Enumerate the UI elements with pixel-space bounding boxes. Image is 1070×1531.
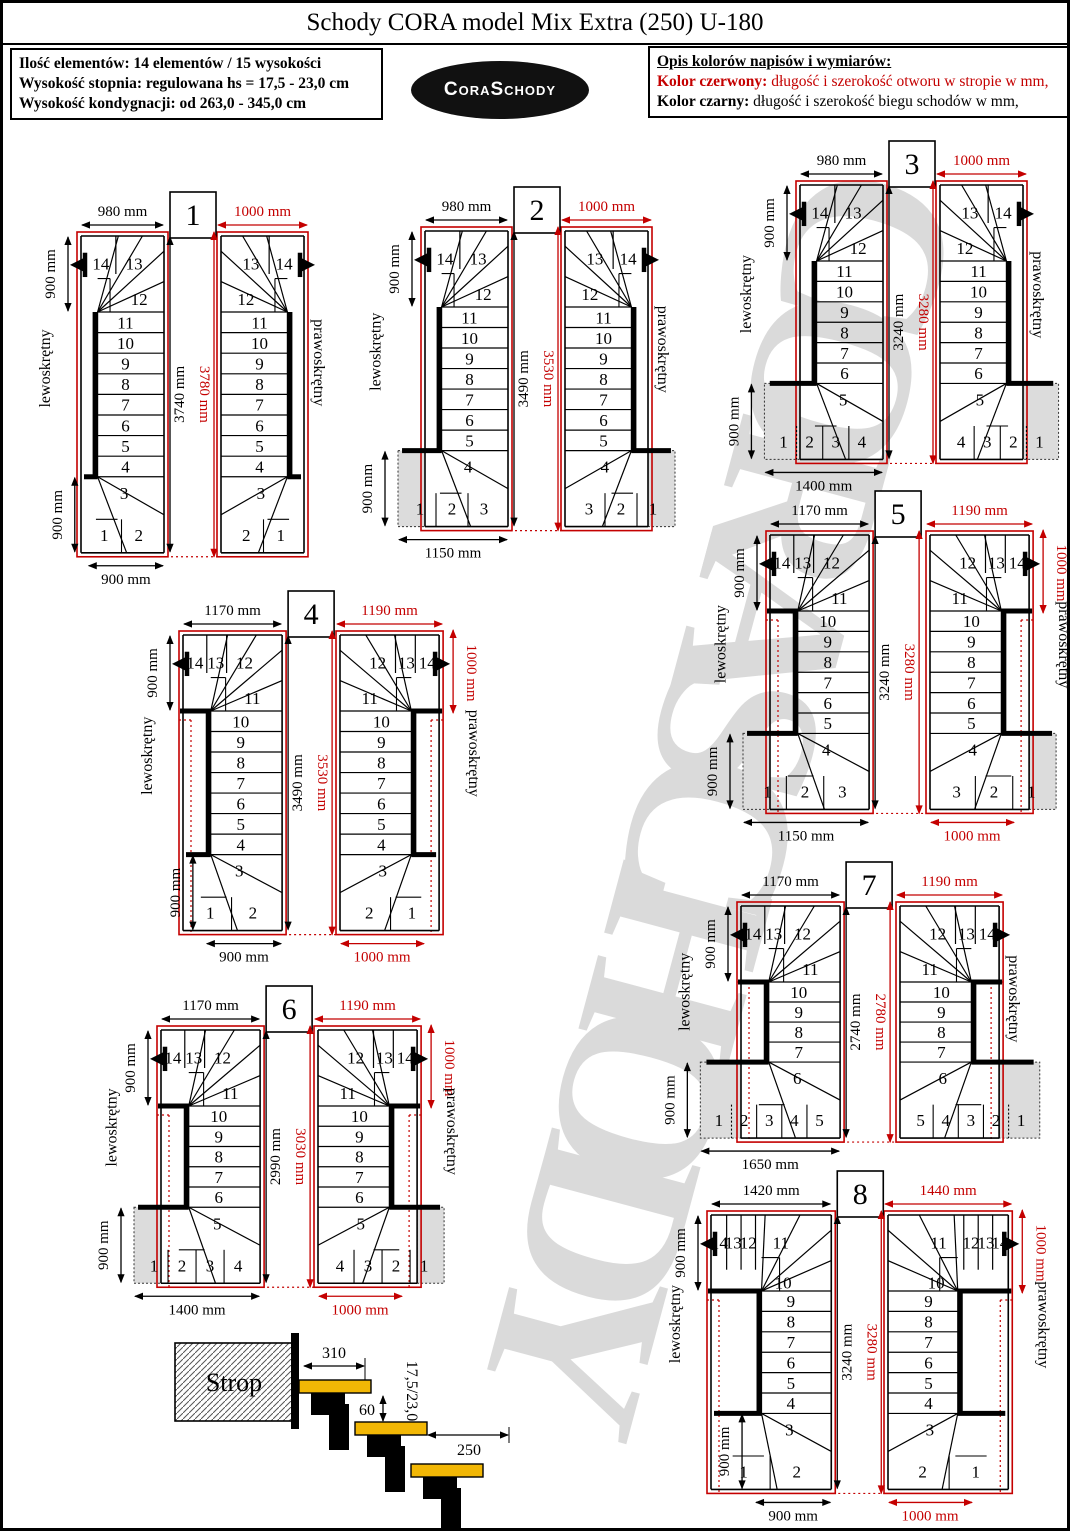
arrowhead-down xyxy=(427,1100,434,1109)
info-line-elements: Ilość elementów: 14 elementów / 15 wysok… xyxy=(19,55,374,73)
step-number: 8 xyxy=(599,370,608,389)
winder-line xyxy=(267,236,288,312)
step-number: 5 xyxy=(236,815,245,834)
step-number: 2 xyxy=(990,782,999,801)
step-number: 6 xyxy=(121,416,129,435)
step-number: 9 xyxy=(465,349,474,368)
info-line-storey-height: Wysokość kondygnacji: od 263,0 - 345,0 c… xyxy=(19,95,374,113)
step-number: 2 xyxy=(992,1111,1001,1130)
winder-line xyxy=(340,855,411,893)
arrowhead-up xyxy=(166,635,173,644)
step-number: 3 xyxy=(379,862,388,881)
dim-bottom-width: 1650 mm xyxy=(742,1157,799,1173)
step-support xyxy=(441,1488,461,1531)
dim-stair-width: 980 mm xyxy=(817,153,867,169)
variant-label-left: lewoskrętny xyxy=(139,717,156,795)
step-number: 10 xyxy=(373,712,390,731)
stair-8-right: 14131211109876543121440 mm1000 mm1000 mm… xyxy=(884,1183,1051,1524)
dim-top-depth: 900 mm xyxy=(43,249,59,299)
winder-line xyxy=(318,1207,389,1245)
variant-label-right: prawoskrętny xyxy=(654,306,671,393)
step-number: 5 xyxy=(213,1214,222,1233)
strop-edge-bar xyxy=(291,1333,299,1429)
opening-outline xyxy=(179,631,286,935)
dim-bottom-depth: 900 mm xyxy=(726,396,742,446)
step-number: 10 xyxy=(232,712,249,731)
step-number: 10 xyxy=(928,1273,945,1292)
step-number: 6 xyxy=(793,1069,802,1088)
legend-black-line: Kolor czarny: długość i szerokość biegu … xyxy=(657,93,1062,111)
arrowhead-right xyxy=(412,1015,421,1022)
step-number: 2 xyxy=(135,526,144,545)
step-number: 1 xyxy=(408,904,417,923)
step-number: 4 xyxy=(336,1256,345,1275)
step-tread xyxy=(355,1422,427,1435)
step-number: 4 xyxy=(941,1111,950,1130)
info-line-step-height: Wysokość stopnia: regulowana hs = 17,5 -… xyxy=(19,75,374,93)
arrowhead-down xyxy=(64,303,71,312)
winder-line xyxy=(762,1215,766,1291)
step-number: 7 xyxy=(377,774,386,793)
step-number: 7 xyxy=(937,1043,946,1062)
step-number: 2 xyxy=(740,1111,749,1130)
step-number: 4 xyxy=(822,740,831,759)
step-number: 1 xyxy=(277,526,286,545)
step-number: 1 xyxy=(779,432,788,451)
arrowhead-right xyxy=(499,216,508,223)
step-number: 9 xyxy=(377,733,386,752)
winder-line xyxy=(888,1413,958,1451)
diagram-4: 14131211109876543121170 mm900 mm900 mm90… xyxy=(139,591,482,966)
step-number: 8 xyxy=(840,323,849,342)
step-number: 7 xyxy=(355,1168,364,1187)
arrowhead-right xyxy=(831,1147,840,1154)
winder-line xyxy=(942,1413,958,1489)
step-number: 3 xyxy=(983,432,992,451)
step-number: 5 xyxy=(787,1374,796,1393)
step-number: 12 xyxy=(929,924,946,943)
arrowhead-left xyxy=(217,221,226,228)
step-support xyxy=(385,1446,405,1492)
step-number: 5 xyxy=(377,815,386,834)
step-number: 12 xyxy=(214,1048,231,1067)
arrowhead-left xyxy=(755,1499,764,1506)
stair-1-left: 1413121110987654312980 mm900 mm900 mm900… xyxy=(37,204,168,588)
step-number: 12 xyxy=(347,1048,364,1067)
arrowhead-down xyxy=(1019,1285,1026,1294)
step-number: 3 xyxy=(785,1420,794,1439)
arrowhead-left xyxy=(206,940,215,947)
arrowhead-down xyxy=(408,298,415,307)
step-number: 14 xyxy=(995,203,1013,222)
arrowhead-left xyxy=(314,1015,323,1022)
arrowhead-right xyxy=(643,216,652,223)
step-number: 5 xyxy=(599,431,608,450)
arrowhead-right xyxy=(251,1015,260,1022)
step-number: 4 xyxy=(787,1394,796,1413)
arrowhead-left xyxy=(88,562,97,569)
step-number: 2 xyxy=(448,500,457,519)
step-number: 12 xyxy=(962,1233,979,1252)
dim-stair-width: 1170 mm xyxy=(762,874,819,890)
step-number: 4 xyxy=(464,458,473,477)
arrowhead-left xyxy=(561,216,570,223)
winder-line xyxy=(211,855,282,893)
step-tread xyxy=(411,1464,483,1477)
step-number: 12 xyxy=(959,553,976,572)
dim-opening-length: 3030 mm xyxy=(292,1128,308,1185)
winder-line xyxy=(98,477,164,515)
dim-stair-length: 2740 mm xyxy=(848,993,864,1050)
arrowhead-down xyxy=(166,702,173,711)
step-number: 2 xyxy=(805,432,814,451)
step-number: 12 xyxy=(823,553,840,572)
arrowhead-left xyxy=(340,940,349,947)
arrowhead-right xyxy=(822,1499,831,1506)
stair-5-right: 14131211109876541231190 mm1000 mm1000 mm… xyxy=(926,503,1070,844)
step-number: 10 xyxy=(595,329,612,348)
arrowhead-right xyxy=(273,940,282,947)
dim-stair-length: 3240 mm xyxy=(877,643,893,700)
step-number: 3 xyxy=(364,1256,373,1275)
variant-label-left: lewoskrętny xyxy=(738,255,755,333)
step-number: 6 xyxy=(967,694,976,713)
step-number: 6 xyxy=(465,411,474,430)
dim-opening-width: 1190 mm xyxy=(339,998,396,1014)
arrowhead-right xyxy=(964,1499,973,1506)
step-number: 6 xyxy=(255,416,264,435)
step-number: 2 xyxy=(918,1462,927,1481)
arrowhead-left xyxy=(134,1293,143,1300)
arrowhead-down xyxy=(144,1097,151,1106)
step-number: 7 xyxy=(974,344,983,363)
dim-top-depth: 900 mm xyxy=(387,244,403,294)
dim-stair-width: 1170 mm xyxy=(182,998,239,1014)
winder-line xyxy=(98,236,119,312)
step-number: 1 xyxy=(416,500,425,519)
arrowhead-left xyxy=(318,1293,327,1300)
dim-bottom-depth: 900 mm xyxy=(662,1075,678,1125)
arrowhead-left xyxy=(303,1362,312,1369)
step-number: 7 xyxy=(823,673,832,692)
step-number: 5 xyxy=(967,714,976,733)
dim-bottom-depth: 900 mm xyxy=(717,1426,733,1476)
step-number: 5 xyxy=(255,437,264,456)
step-number: 11 xyxy=(836,262,852,281)
step-number: 10 xyxy=(970,283,987,302)
diagram-number: 2 xyxy=(530,194,545,227)
step-number: 11 xyxy=(952,589,968,608)
arrowhead-left xyxy=(884,1200,893,1207)
dim-stair-width: 980 mm xyxy=(442,199,492,215)
arrowhead-right xyxy=(299,221,308,228)
step-number: 7 xyxy=(599,390,608,409)
arrowhead-left xyxy=(425,216,434,223)
step-number: 6 xyxy=(214,1188,223,1207)
arrowhead-right xyxy=(1003,1200,1012,1207)
winder-line xyxy=(930,733,1001,771)
variant-label-right: prawoskrętny xyxy=(310,319,327,406)
diagram-number: 6 xyxy=(282,993,297,1026)
variant-label-right: prawoskrętny xyxy=(1005,955,1022,1042)
arrowhead-right xyxy=(356,1362,365,1369)
step-number: 3 xyxy=(480,500,489,519)
dim-top-depth: 900 mm xyxy=(673,1228,689,1278)
winder-line xyxy=(888,1261,958,1291)
arrowhead-left xyxy=(930,819,939,826)
winder-line xyxy=(762,1261,832,1291)
step-number: 11 xyxy=(244,689,260,708)
step-number: 8 xyxy=(967,653,976,672)
step-number: 1 xyxy=(206,904,215,923)
step-number: 11 xyxy=(362,689,378,708)
arrowhead-right xyxy=(831,891,840,898)
step-number: 5 xyxy=(823,714,832,733)
step-number: 1 xyxy=(1017,1111,1025,1130)
step-number: 5 xyxy=(465,431,474,450)
dim-opening-side: 1000 mm xyxy=(1032,1224,1048,1281)
dim-opening-length: 2780 mm xyxy=(872,993,888,1050)
step-number: 12 xyxy=(369,653,386,672)
dim-opening-width: 1190 mm xyxy=(361,603,418,619)
arrowhead-left xyxy=(81,221,90,228)
step-number: 2 xyxy=(792,1462,801,1481)
step-number: 7 xyxy=(794,1043,803,1062)
stair-plans-drawing: CORASCHODY1413121110987654312980 mm900 m… xyxy=(3,3,1070,1531)
step-number: 14 xyxy=(620,249,638,268)
arrowhead-up xyxy=(117,1207,124,1216)
step-number: 3 xyxy=(120,484,129,503)
winder-line xyxy=(211,855,238,931)
step-number: 1 xyxy=(763,782,772,801)
arrowhead-up xyxy=(1019,1209,1026,1218)
diagram-2: 1413121110987654123980 mm900 mm900 mm115… xyxy=(360,187,675,562)
winder-line xyxy=(221,477,287,515)
logo-text: CoraSchody xyxy=(444,79,556,101)
dim-opening-length: 3280 mm xyxy=(863,1324,879,1381)
dim-stair-width: 1170 mm xyxy=(791,503,848,519)
step-number: 14 xyxy=(92,254,110,273)
step-number: 3 xyxy=(257,484,266,503)
step-number: 11 xyxy=(251,313,267,332)
step-number: 1 xyxy=(1027,782,1036,801)
step-number: 5 xyxy=(357,1214,366,1233)
variant-label-right: prawoskrętny xyxy=(1034,1281,1051,1368)
arrowhead-up xyxy=(381,451,388,460)
arrowhead-right xyxy=(394,1293,403,1300)
step-number: 1 xyxy=(739,1462,748,1481)
step-number: 8 xyxy=(255,375,264,394)
dim-opening-bottom: 1000 mm xyxy=(943,828,1000,844)
step-number: 6 xyxy=(355,1188,364,1207)
dim-top-depth: 900 mm xyxy=(703,919,719,969)
arrowhead-right xyxy=(500,1431,509,1438)
step-number: 3 xyxy=(952,782,961,801)
step-number: 1 xyxy=(100,526,109,545)
arrowhead-right xyxy=(434,620,443,627)
dim-opening-length: 3780 mm xyxy=(196,366,212,423)
step-number: 8 xyxy=(924,1313,933,1332)
step-number: 13 xyxy=(586,249,603,268)
dim-opening-bottom: 1000 mm xyxy=(331,1302,388,1318)
dim-opening-width: 1000 mm xyxy=(234,204,291,220)
step-number: 3 xyxy=(967,1111,976,1130)
step-number: 1 xyxy=(715,1111,724,1130)
diagram-number: 1 xyxy=(186,199,201,232)
step-number: 13 xyxy=(961,203,978,222)
dim-bottom-width: 900 mm xyxy=(768,1508,818,1524)
step-number: 7 xyxy=(255,396,264,415)
step-number: 9 xyxy=(937,1003,946,1022)
step-number: 11 xyxy=(922,960,938,979)
dim-310: 310 xyxy=(322,1345,346,1362)
step-number: 2 xyxy=(617,500,626,519)
arrowhead-left xyxy=(398,536,407,543)
arrowhead-right xyxy=(155,562,164,569)
step-number: 1 xyxy=(150,1256,159,1275)
dim-bottom-depth: 900 mm xyxy=(360,463,376,513)
step-number: 5 xyxy=(121,437,129,456)
diagram-number: 8 xyxy=(853,1178,868,1211)
arrowhead-down xyxy=(738,1480,745,1489)
diagram-number: 4 xyxy=(304,598,319,631)
step-number: 5 xyxy=(815,1111,824,1130)
step-number: 8 xyxy=(121,375,129,394)
dim-stair-width: 1420 mm xyxy=(743,1183,800,1199)
step-number: 7 xyxy=(924,1333,933,1352)
arrowhead-right xyxy=(1024,520,1033,527)
stair-7-right: 14131211109876123451190 mmprawoskrętny xyxy=(896,874,1040,1142)
arrowhead-down xyxy=(449,705,456,714)
arrowhead-down xyxy=(1039,605,1046,614)
color-legend: Opis kolorów napisów i wymiarów: Kolor c… xyxy=(648,46,1070,118)
arrowhead-down xyxy=(379,1413,386,1422)
stair-2-left: 1413121110987654123980 mm900 mm900 mm115… xyxy=(360,199,512,562)
step-number: 12 xyxy=(794,924,811,943)
dim-stair-length: 3240 mm xyxy=(839,1323,855,1380)
step-number: 9 xyxy=(787,1292,796,1311)
step-number: 2 xyxy=(801,782,810,801)
step-number: 6 xyxy=(236,794,245,813)
step-number: 9 xyxy=(840,303,849,322)
step-number: 4 xyxy=(858,432,867,451)
step-number: 10 xyxy=(963,612,980,631)
arrowhead-left xyxy=(183,620,192,627)
dim-bottom-width: 900 mm xyxy=(101,572,151,588)
step-number: 14 xyxy=(436,249,454,268)
strop-label: Strop xyxy=(206,1368,262,1397)
dim-stair-length: 3490 mm xyxy=(516,350,532,407)
dim-stair-length: 2990 mm xyxy=(268,1128,284,1185)
dim-top-depth: 900 mm xyxy=(762,198,778,248)
stair-4-left: 14131211109876543121170 mm900 mm900 mm90… xyxy=(139,603,286,966)
step-number: 9 xyxy=(599,349,608,368)
page-title: Schody CORA model Mix Extra (250) U-180 xyxy=(3,3,1067,45)
step-number: 4 xyxy=(255,457,264,476)
step-number: 6 xyxy=(974,364,983,383)
step-number: 11 xyxy=(461,308,477,327)
cora-schody-logo: CoraSchody xyxy=(411,61,589,119)
step-number: 10 xyxy=(461,329,478,348)
dim-bottom-width: 1150 mm xyxy=(425,546,482,562)
arrowhead-right xyxy=(251,1293,260,1300)
dim-opening-length: 3530 mm xyxy=(314,754,330,811)
step-number: 11 xyxy=(595,308,611,327)
step-number: 12 xyxy=(740,1233,757,1252)
step-tread xyxy=(299,1380,371,1393)
step-number: 4 xyxy=(790,1111,799,1130)
step-number: 5 xyxy=(839,390,848,409)
arrowhead-right xyxy=(860,819,869,826)
step-number: 13 xyxy=(978,1233,995,1252)
step-number: 3 xyxy=(832,432,841,451)
page: Schody CORA model Mix Extra (250) U-180 … xyxy=(0,0,1070,1531)
variant-label-right: prawoskrętny xyxy=(1055,601,1070,688)
arrowhead-right xyxy=(1018,170,1027,177)
diagram-number: 7 xyxy=(862,869,877,902)
stair-1-right: 14131211109876543121000 mmprawoskrętny xyxy=(217,204,327,557)
step-number: 10 xyxy=(117,334,134,353)
step-number: 7 xyxy=(967,673,976,692)
step-number: 8 xyxy=(794,1023,803,1042)
step-number: 10 xyxy=(933,983,950,1002)
step-number: 3 xyxy=(838,782,847,801)
stair-6-left: 14131211109876512341170 mm900 mm900 mm14… xyxy=(96,998,264,1318)
dim-stair-length: 3240 mm xyxy=(891,293,907,350)
step-number: 9 xyxy=(794,1003,803,1022)
arrowhead-down xyxy=(381,518,388,527)
step-number: 13 xyxy=(242,254,259,273)
arrowhead-left xyxy=(336,620,345,627)
step-number: 3 xyxy=(765,1111,774,1130)
step-number: 11 xyxy=(831,589,847,608)
step-number: 9 xyxy=(974,303,983,322)
diagram-number: 3 xyxy=(905,148,920,181)
step-number: 4 xyxy=(234,1256,243,1275)
step-number: 10 xyxy=(251,334,268,353)
variant-label-left: lewoskrętny xyxy=(667,1285,684,1363)
arrowhead-up xyxy=(408,231,415,240)
arrowhead-left xyxy=(936,170,945,177)
step-number: 8 xyxy=(974,323,983,342)
step-number: 10 xyxy=(819,612,836,631)
step-number: 2 xyxy=(249,904,258,923)
step-number: 1 xyxy=(420,1256,429,1275)
step-number: 8 xyxy=(355,1148,364,1167)
arrowhead-right xyxy=(416,940,425,947)
dim-bottom-width: 1150 mm xyxy=(778,828,835,844)
dim-opening-side: 1000 mm xyxy=(463,644,479,701)
arrowhead-left xyxy=(161,1015,170,1022)
opening-outline xyxy=(336,631,443,935)
step-number: 9 xyxy=(255,354,264,373)
step-number: 14 xyxy=(276,254,294,273)
step-number: 2 xyxy=(392,1256,401,1275)
dim-60: 60 xyxy=(359,1402,375,1419)
variant-label-right: prawoskrętny xyxy=(443,1088,460,1175)
step-number: 10 xyxy=(775,1273,792,1292)
dim-bottom-width: 900 mm xyxy=(219,950,269,966)
variant-label-left: lewoskrętny xyxy=(368,313,385,391)
step-number: 11 xyxy=(117,313,133,332)
dim-top-depth: 900 mm xyxy=(123,1043,139,1093)
arrowhead-right xyxy=(822,1200,831,1207)
dim-bottom-width: 1400 mm xyxy=(169,1302,226,1318)
arrowhead-up xyxy=(64,236,71,245)
variant-label-left: lewoskrętny xyxy=(713,605,730,683)
stair-2-right: 14131211109876541231000 mmprawoskrętny xyxy=(561,199,675,531)
step-number: 5 xyxy=(924,1374,933,1393)
